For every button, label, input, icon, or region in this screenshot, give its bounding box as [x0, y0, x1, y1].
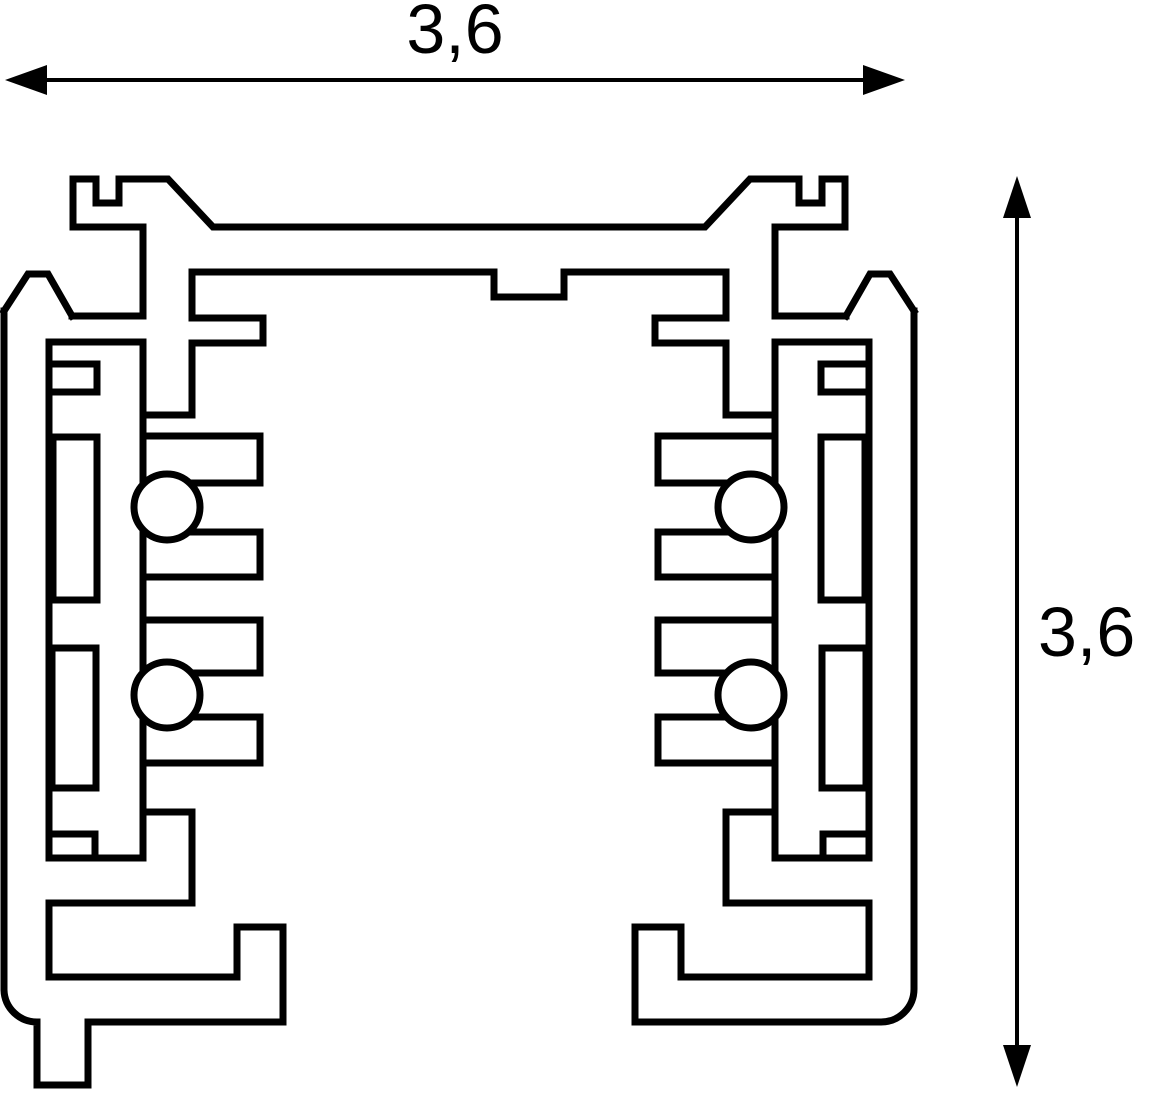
arrowhead-icon	[863, 65, 905, 95]
width-dimension-label: 3,6	[406, 0, 503, 64]
technical-drawing-page: 3,6 3,6	[0, 0, 1150, 1096]
arrowhead-icon	[1003, 176, 1031, 218]
height-dimension-arrow	[1003, 176, 1031, 1087]
arrowhead-icon	[5, 65, 47, 95]
profile-linework	[4, 179, 914, 1085]
width-dimension-arrow	[5, 65, 905, 95]
conductor-circles	[134, 474, 784, 728]
track-profile-cross-section	[0, 0, 1150, 1096]
arrowhead-icon	[1003, 1045, 1031, 1087]
height-dimension-label: 3,6	[1038, 597, 1135, 667]
